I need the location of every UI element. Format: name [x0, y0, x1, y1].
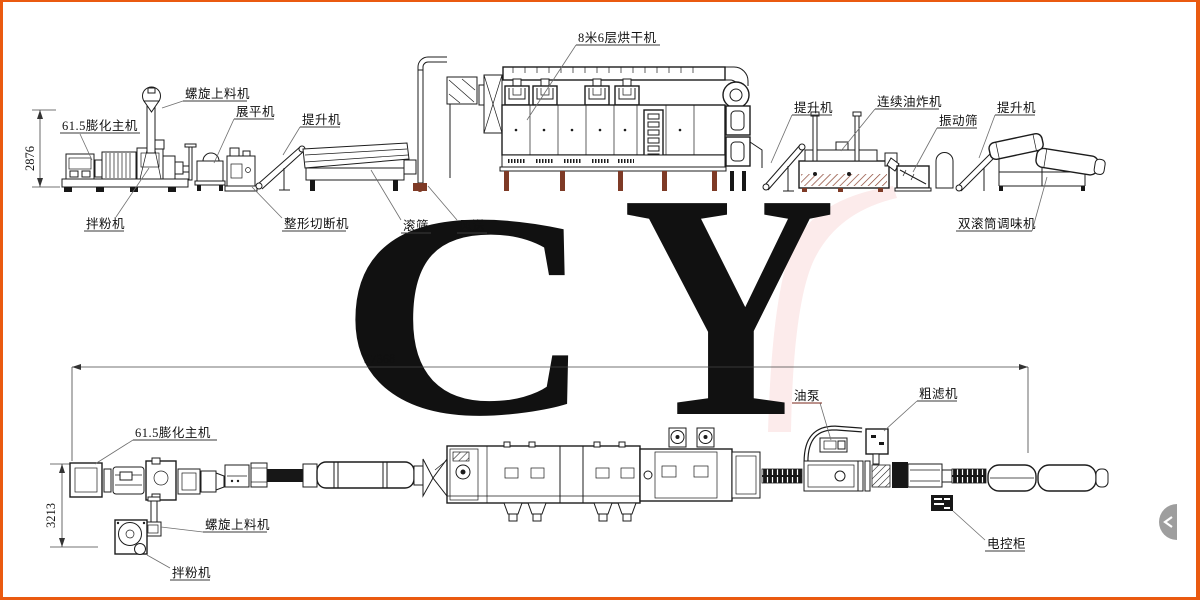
dim-2876: 2876 — [23, 110, 60, 187]
svg-text:滚筛: 滚筛 — [403, 218, 429, 233]
dim-37368-text: 37368 — [364, 352, 395, 366]
svg-text:61.5膨化主机: 61.5膨化主机 — [62, 119, 138, 133]
label-control-cabinet: 电控柜 — [953, 511, 1026, 551]
fryer-machine — [799, 112, 897, 192]
watermark-letter-c: C — [338, 154, 595, 477]
label-seasoning: 双滚筒调味机 — [956, 177, 1047, 231]
label-coarse-filter: 粗滤机 — [884, 387, 958, 431]
svg-text:展平机: 展平机 — [236, 105, 275, 119]
control-cabinet-plan — [931, 495, 953, 511]
label-spiral-feeder-plan: 螺旋上料机 — [161, 518, 270, 532]
dim-2876-text: 2876 — [23, 146, 37, 171]
svg-text:8米6层烘干机: 8米6层烘干机 — [578, 31, 657, 45]
mixer-plan — [115, 520, 147, 555]
svg-text:拌粉机: 拌粉机 — [172, 565, 211, 580]
extruder-machine — [62, 87, 189, 192]
svg-text:风送: 风送 — [459, 218, 485, 233]
svg-text:61.5膨化主机: 61.5膨化主机 — [135, 426, 211, 440]
svg-text:提升机: 提升机 — [997, 100, 1036, 115]
svg-text:螺旋上料机: 螺旋上料机 — [185, 87, 250, 101]
production-line-drawing: C Y 2876 — [0, 0, 1200, 600]
extruder-plan — [70, 458, 224, 500]
svg-text:振动筛: 振动筛 — [939, 113, 978, 128]
shaper-cutter-machine — [225, 148, 257, 191]
seasoning-drums-plan — [988, 465, 1108, 491]
label-mixer-plan: 拌粉机 — [147, 555, 211, 580]
svg-text:油泵: 油泵 — [794, 389, 820, 403]
svg-text:螺旋上料机: 螺旋上料机 — [205, 518, 270, 532]
dryer-plan — [447, 442, 640, 521]
svg-text:整形切断机: 整形切断机 — [284, 216, 349, 231]
dryer-fan-units — [505, 79, 639, 105]
svg-text:电控柜: 电控柜 — [987, 537, 1026, 551]
drawing-canvas: C Y 2876 — [0, 0, 1200, 600]
svg-text:拌粉机: 拌粉机 — [86, 216, 125, 231]
svg-text:提升机: 提升机 — [794, 100, 833, 115]
elevator-left-machine — [256, 146, 305, 190]
svg-text:双滚筒调味机: 双滚筒调味机 — [958, 216, 1036, 231]
dryer-hoppers-plan — [504, 503, 636, 521]
svg-text:提升机: 提升机 — [302, 112, 341, 127]
side-panel-toggle[interactable] — [1159, 504, 1177, 540]
dim-3213-text: 3213 — [44, 503, 58, 528]
svg-text:粗滤机: 粗滤机 — [919, 387, 958, 401]
svg-text:连续油炸机: 连续油炸机 — [877, 94, 942, 109]
label-shaper-cutter: 整形切断机 — [252, 187, 349, 231]
seasoning-machine — [988, 133, 1106, 191]
